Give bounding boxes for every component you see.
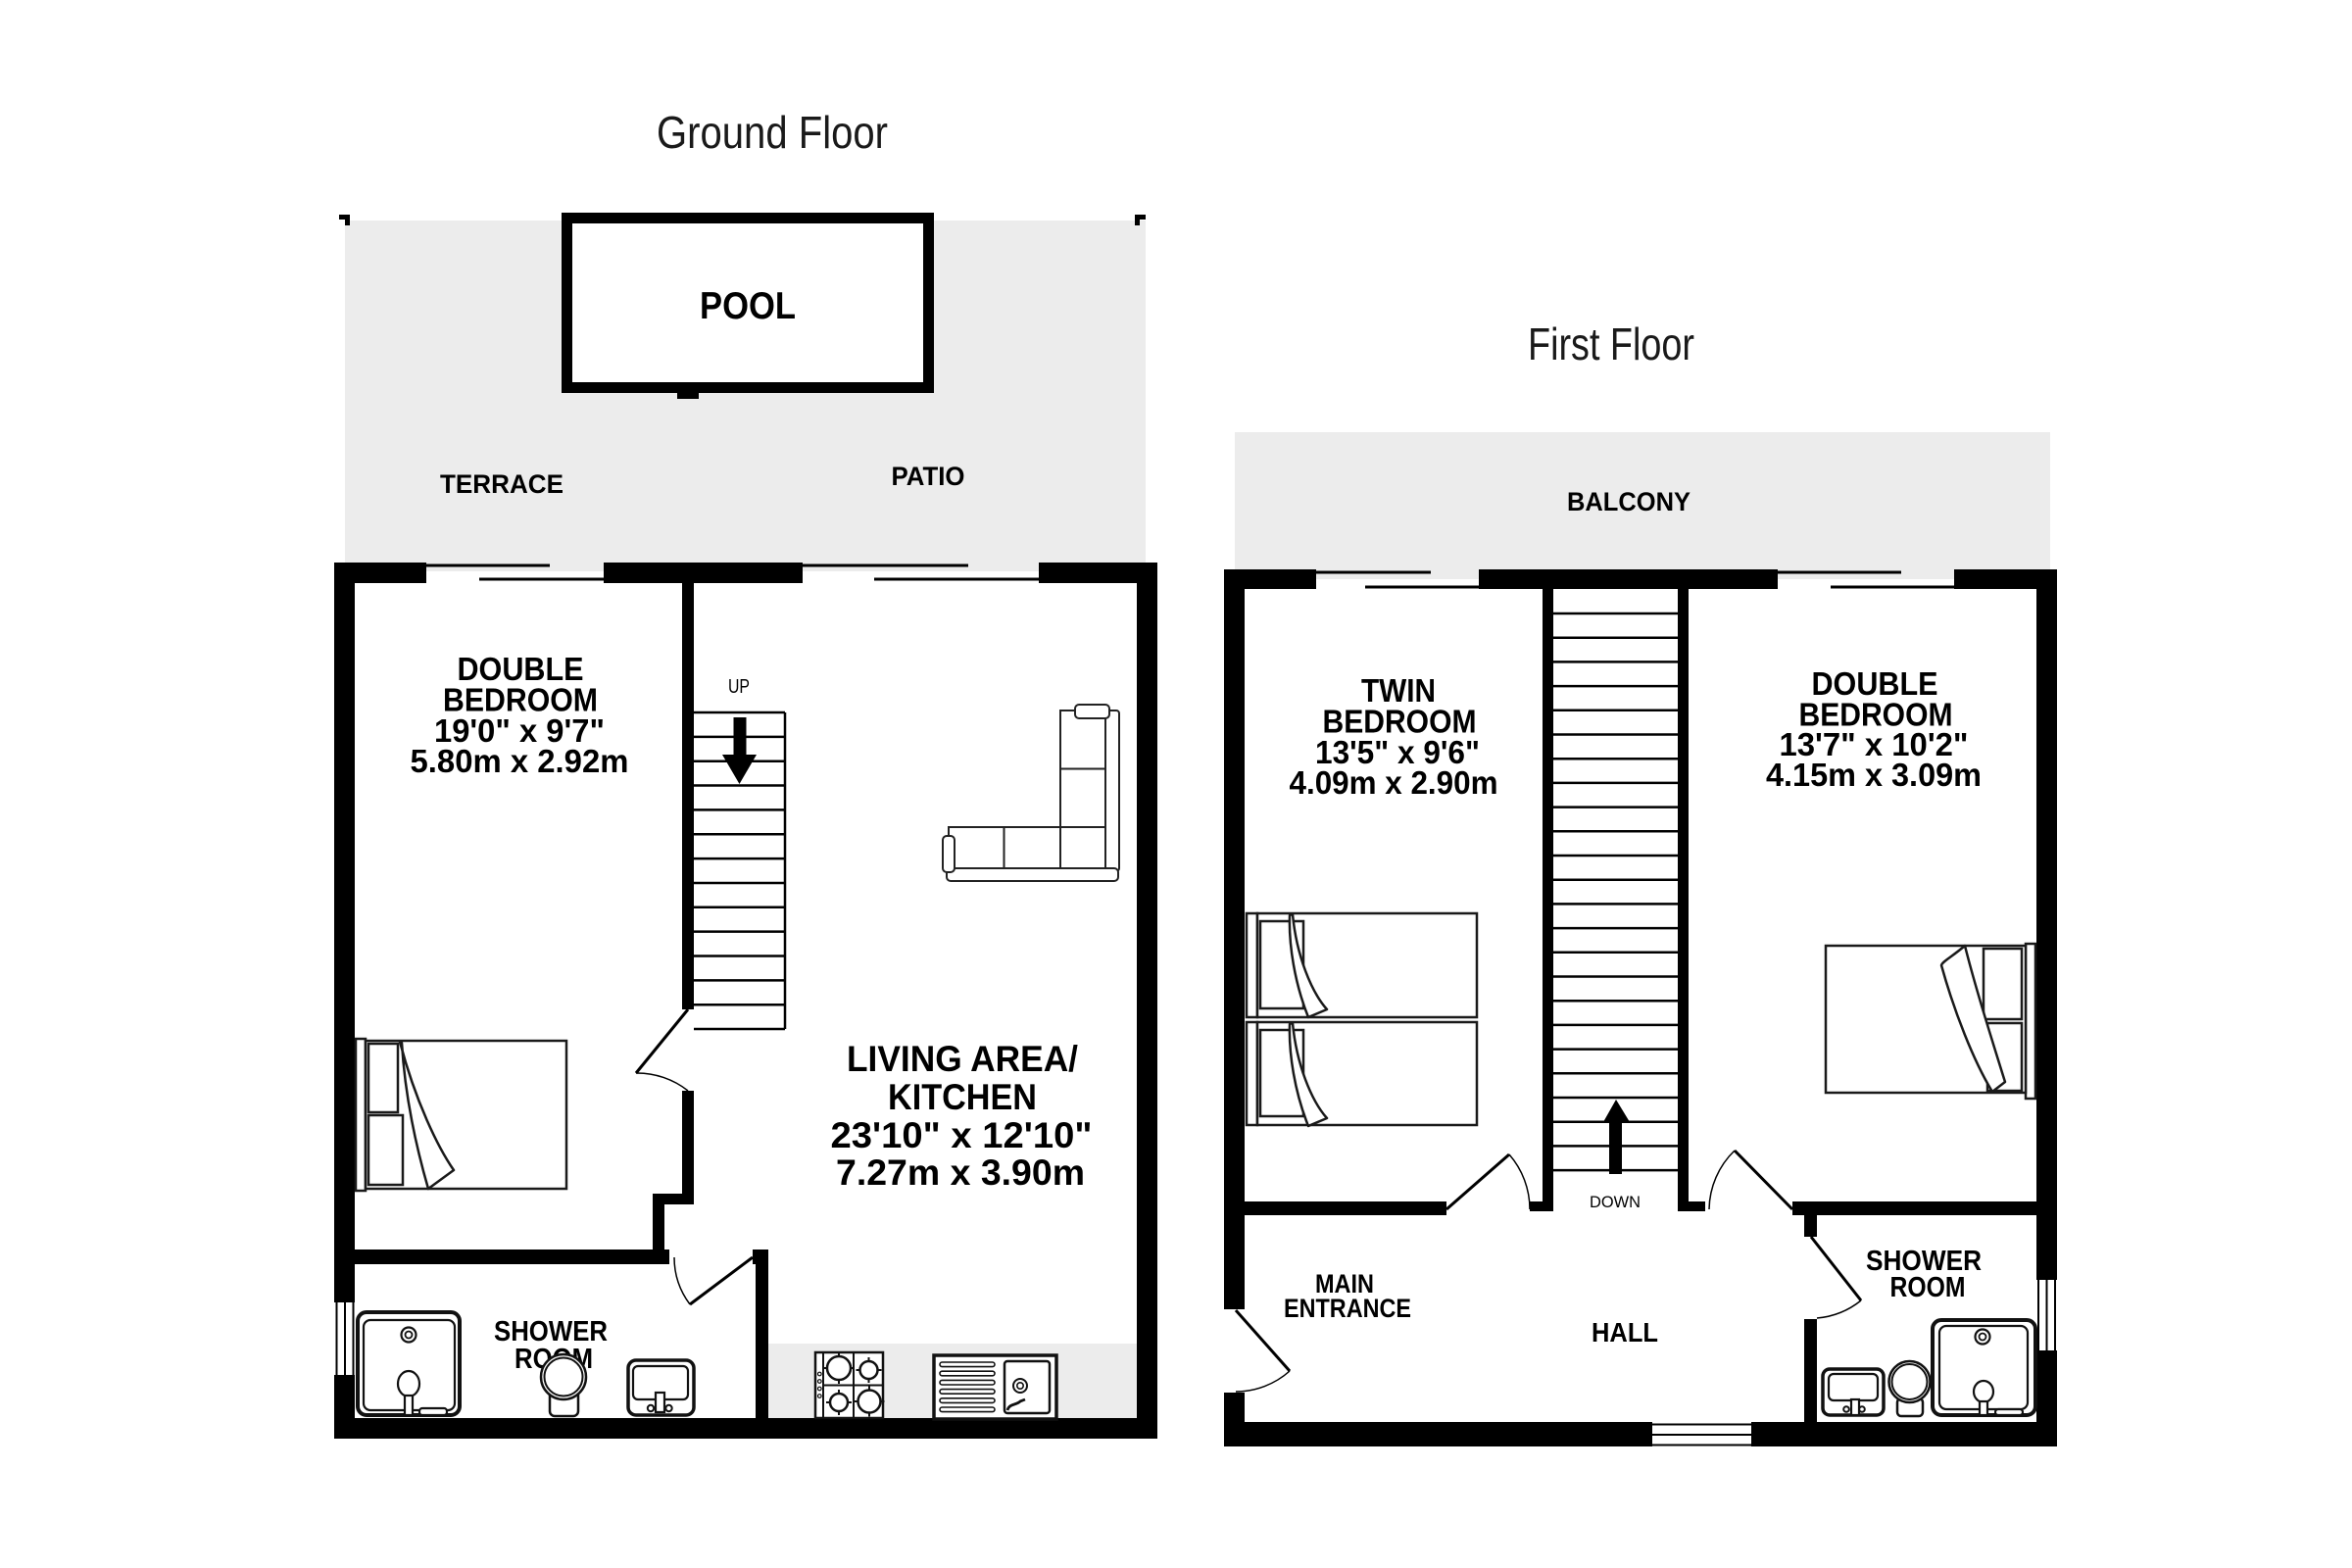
svg-text:ENTRANCE: ENTRANCE bbox=[1284, 1294, 1411, 1323]
svg-text:4.09m x 2.90m: 4.09m x 2.90m bbox=[1290, 764, 1498, 801]
svg-text:LIVING AREA/: LIVING AREA/ bbox=[847, 1039, 1078, 1079]
svg-text:5.80m x 2.92m: 5.80m x 2.92m bbox=[411, 743, 629, 779]
svg-text:BALCONY: BALCONY bbox=[1567, 487, 1690, 516]
svg-text:HALL: HALL bbox=[1592, 1317, 1658, 1347]
svg-text:4.15m x 3.09m: 4.15m x 3.09m bbox=[1766, 757, 1982, 793]
svg-text:PATIO: PATIO bbox=[892, 462, 965, 491]
svg-text:KITCHEN: KITCHEN bbox=[888, 1077, 1037, 1117]
svg-text:23'10" x 12'10": 23'10" x 12'10" bbox=[831, 1115, 1093, 1155]
svg-text:First Floor: First Floor bbox=[1528, 318, 1694, 369]
svg-text:TERRACE: TERRACE bbox=[440, 469, 563, 499]
svg-text:DOWN: DOWN bbox=[1590, 1193, 1641, 1211]
svg-text:7.27m x 3.90m: 7.27m x 3.90m bbox=[836, 1152, 1085, 1193]
svg-text:ROOM: ROOM bbox=[1890, 1272, 1966, 1303]
svg-text:UP: UP bbox=[728, 676, 750, 698]
svg-text:POOL: POOL bbox=[700, 285, 796, 327]
svg-text:Ground Floor: Ground Floor bbox=[657, 107, 888, 158]
